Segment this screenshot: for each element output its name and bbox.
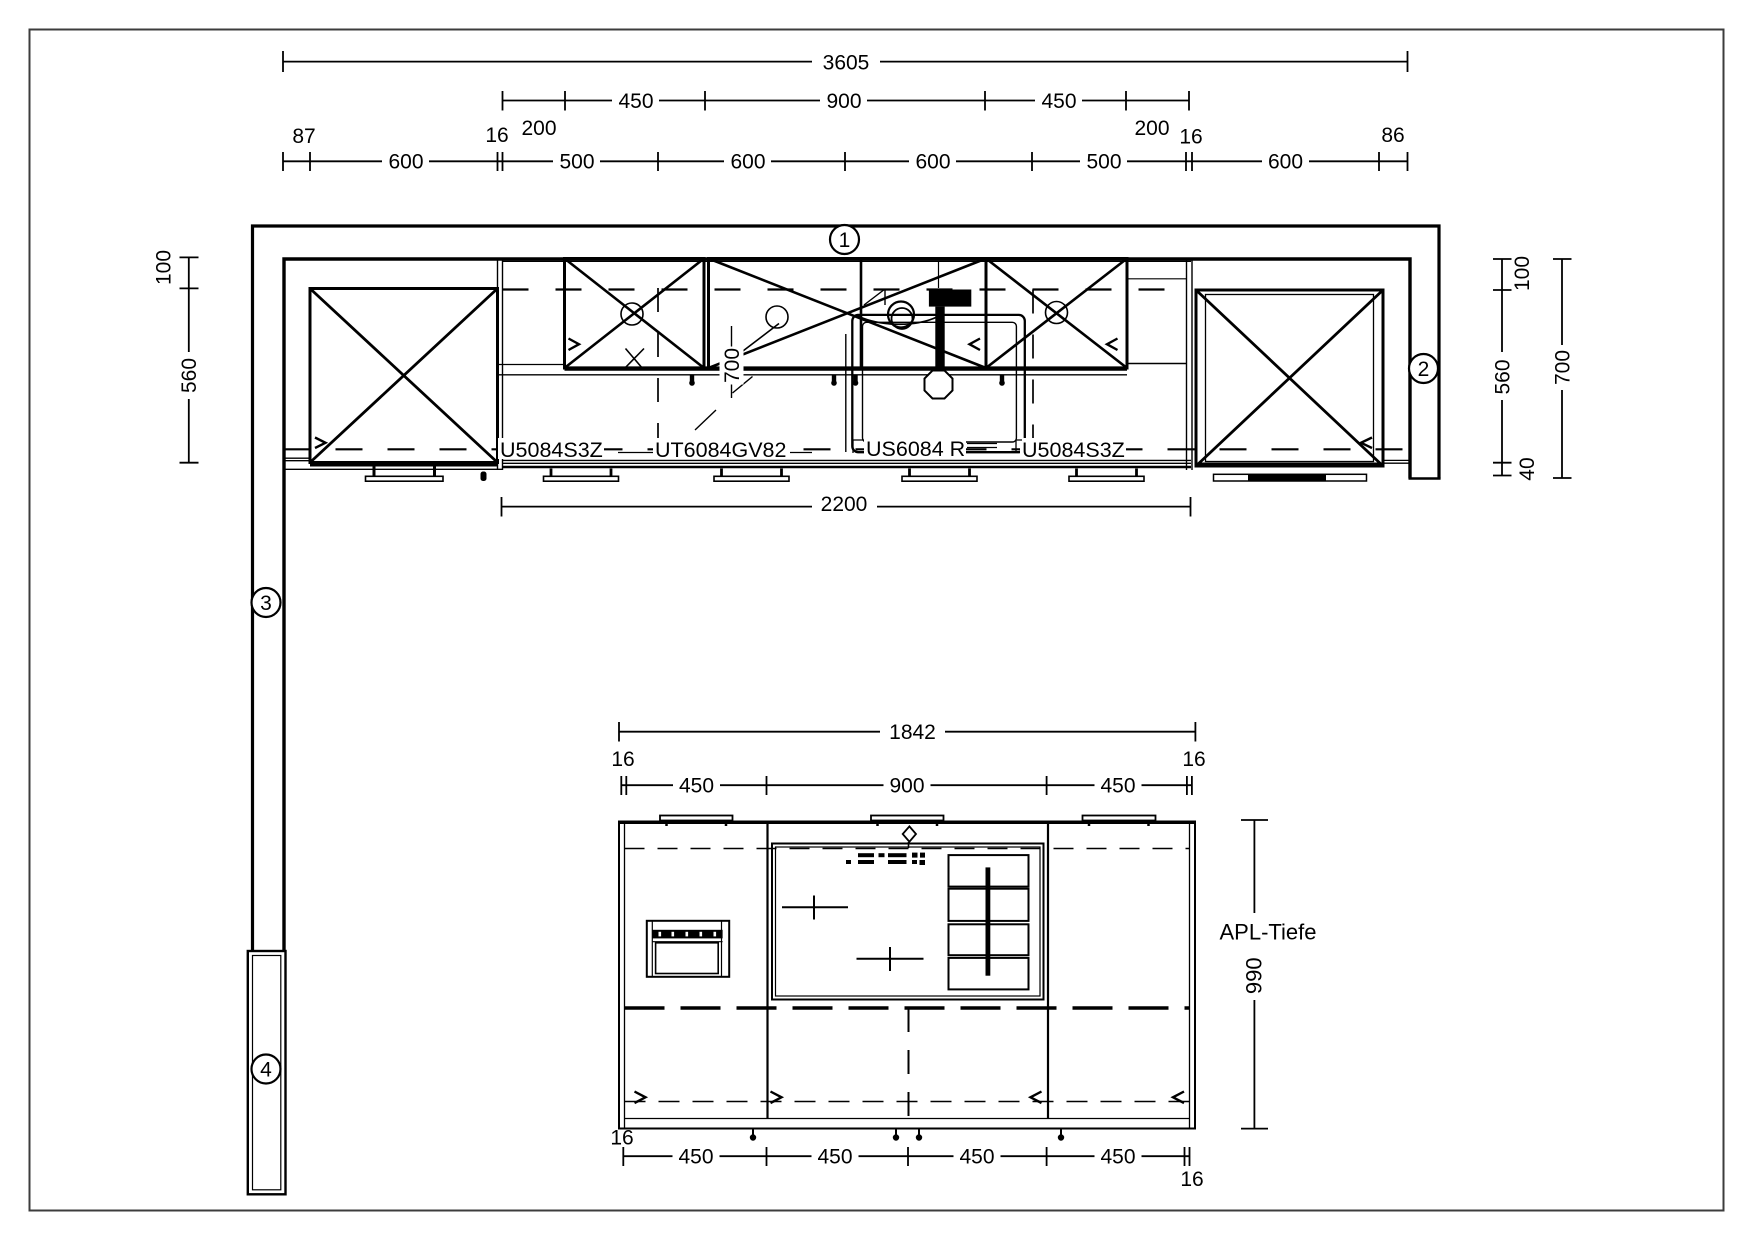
svg-text:900: 900 — [889, 775, 924, 798]
svg-text:700: 700 — [1552, 350, 1575, 385]
svg-text:16: 16 — [1179, 126, 1202, 149]
svg-text:3605: 3605 — [823, 52, 870, 75]
svg-text:200: 200 — [1134, 117, 1169, 140]
svg-text:APL-Tiefe: APL-Tiefe — [1219, 920, 1316, 945]
svg-text:700: 700 — [721, 348, 744, 383]
svg-text:500: 500 — [1086, 151, 1121, 174]
svg-text:100: 100 — [152, 250, 175, 285]
svg-text:450: 450 — [679, 775, 714, 798]
svg-text:450: 450 — [678, 1146, 713, 1169]
svg-text:US6084 R: US6084 R — [866, 437, 965, 461]
svg-text:3: 3 — [260, 592, 272, 615]
svg-text:16: 16 — [485, 124, 508, 147]
svg-text:16: 16 — [1180, 1168, 1203, 1191]
svg-text:600: 600 — [915, 151, 950, 174]
svg-text:16: 16 — [611, 748, 634, 771]
svg-text:600: 600 — [730, 151, 765, 174]
svg-text:450: 450 — [618, 90, 653, 113]
svg-text:U5084S3Z: U5084S3Z — [1022, 438, 1125, 462]
svg-text:500: 500 — [559, 151, 594, 174]
svg-text:UT6084GV82: UT6084GV82 — [655, 438, 786, 462]
svg-text:450: 450 — [817, 1146, 852, 1169]
svg-text:4: 4 — [260, 1059, 272, 1082]
svg-text:450: 450 — [959, 1146, 994, 1169]
svg-text:U5084S3Z: U5084S3Z — [500, 438, 603, 462]
svg-text:560: 560 — [1492, 359, 1515, 394]
svg-text:87: 87 — [292, 125, 315, 148]
svg-text:200: 200 — [521, 117, 556, 140]
svg-text:1: 1 — [839, 229, 851, 252]
svg-text:2: 2 — [1418, 358, 1430, 381]
svg-text:600: 600 — [388, 151, 423, 174]
svg-text:600: 600 — [1268, 151, 1303, 174]
svg-text:1842: 1842 — [889, 721, 936, 744]
svg-text:86: 86 — [1381, 124, 1404, 147]
svg-text:450: 450 — [1041, 90, 1076, 113]
svg-text:990: 990 — [1242, 957, 1267, 994]
svg-text:16: 16 — [610, 1127, 633, 1150]
svg-text:560: 560 — [178, 358, 201, 393]
svg-text:450: 450 — [1100, 775, 1135, 798]
svg-text:900: 900 — [826, 90, 861, 113]
svg-text:2200: 2200 — [821, 493, 868, 516]
svg-text:100: 100 — [1511, 256, 1534, 291]
svg-text:16: 16 — [1182, 748, 1205, 771]
svg-text:450: 450 — [1100, 1146, 1135, 1169]
svg-text:40: 40 — [1516, 457, 1539, 480]
